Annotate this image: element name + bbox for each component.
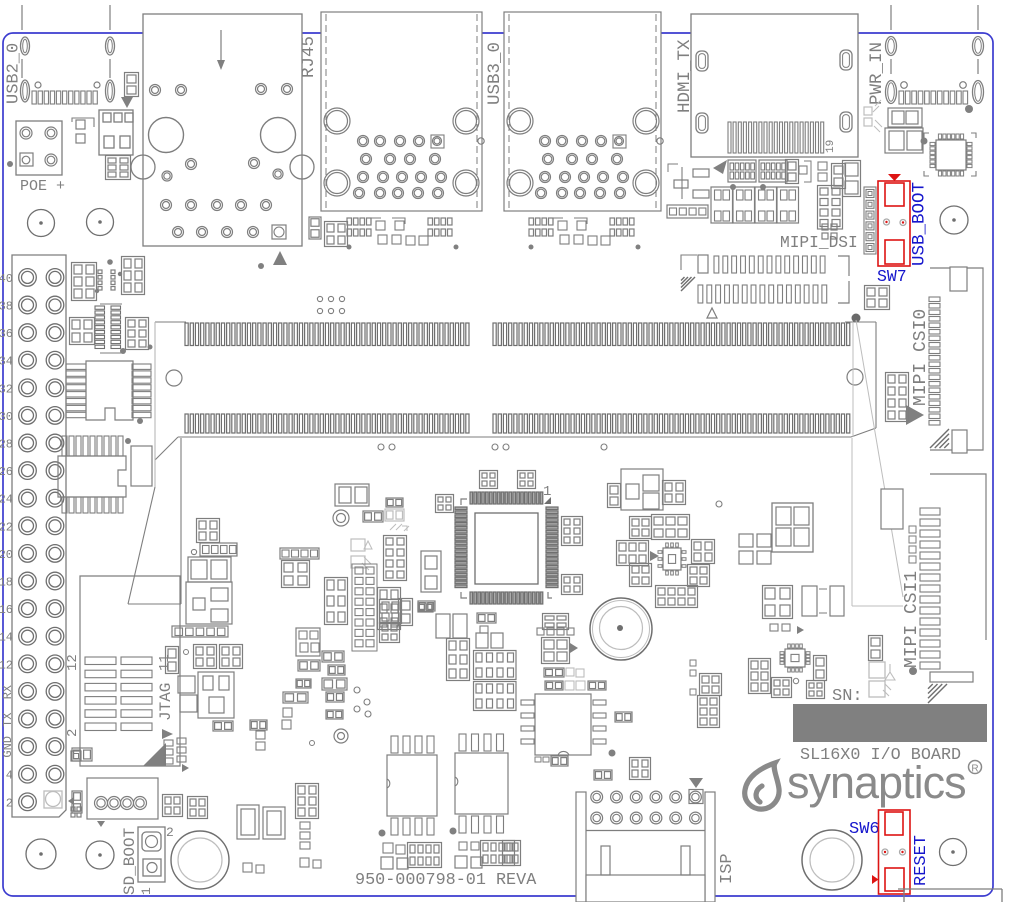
svg-text:32: 32 [0, 382, 13, 396]
svg-text:2: 2 [65, 729, 81, 737]
svg-text:18: 18 [0, 576, 13, 590]
svg-text:22: 22 [0, 520, 13, 534]
svg-text:RX: RX [1, 685, 15, 699]
svg-text:MIPI CSI0: MIPI CSI0 [911, 309, 931, 406]
svg-text:TX: TX [1, 713, 15, 727]
svg-text:40: 40 [0, 272, 13, 286]
svg-text:34: 34 [0, 355, 13, 369]
svg-text:SD_BOOT: SD_BOOT [121, 828, 139, 895]
svg-text:19: 19 [825, 140, 837, 153]
svg-text:16: 16 [0, 603, 13, 617]
svg-text:RESET: RESET [912, 835, 931, 886]
svg-text:36: 36 [0, 327, 13, 341]
svg-text:POE +: POE + [20, 178, 65, 195]
svg-text:4: 4 [6, 769, 13, 783]
svg-text:1: 1 [543, 484, 551, 500]
svg-text:ISP: ISP [718, 853, 737, 884]
svg-text:2: 2 [166, 825, 174, 840]
svg-text:24: 24 [0, 493, 13, 507]
svg-text:30: 30 [0, 410, 13, 424]
svg-text:12: 12 [0, 658, 13, 672]
svg-text:26: 26 [0, 465, 13, 479]
svg-text:MIPI CSI1: MIPI CSI1 [902, 571, 922, 668]
svg-text:GND: GND [1, 736, 15, 758]
svg-text:SN:: SN: [832, 687, 863, 706]
svg-text:RJ45: RJ45 [299, 36, 319, 78]
svg-text:PWR_IN: PWR_IN [867, 42, 887, 105]
svg-text:synaptics: synaptics [787, 757, 966, 808]
svg-text:MIPI_DSI: MIPI_DSI [780, 234, 858, 252]
svg-text:USB_BOOT: USB_BOOT [910, 182, 930, 266]
svg-text:950-000798-01 REVA: 950-000798-01 REVA [355, 871, 537, 890]
svg-text:1: 1 [139, 887, 154, 895]
svg-text:20: 20 [0, 548, 13, 562]
svg-text:SW7: SW7 [877, 267, 907, 286]
svg-text:38: 38 [0, 300, 13, 314]
svg-text:USB3_0: USB3_0 [485, 42, 505, 105]
svg-text:14: 14 [0, 631, 13, 645]
svg-text:SW6: SW6 [849, 820, 880, 839]
svg-text:JTAG: JTAG [157, 683, 175, 721]
svg-text:12: 12 [65, 654, 81, 671]
svg-text:2: 2 [6, 796, 13, 810]
svg-text:R: R [971, 764, 978, 775]
svg-text:USB2_0: USB2_0 [5, 43, 24, 104]
svg-text:28: 28 [0, 438, 13, 452]
